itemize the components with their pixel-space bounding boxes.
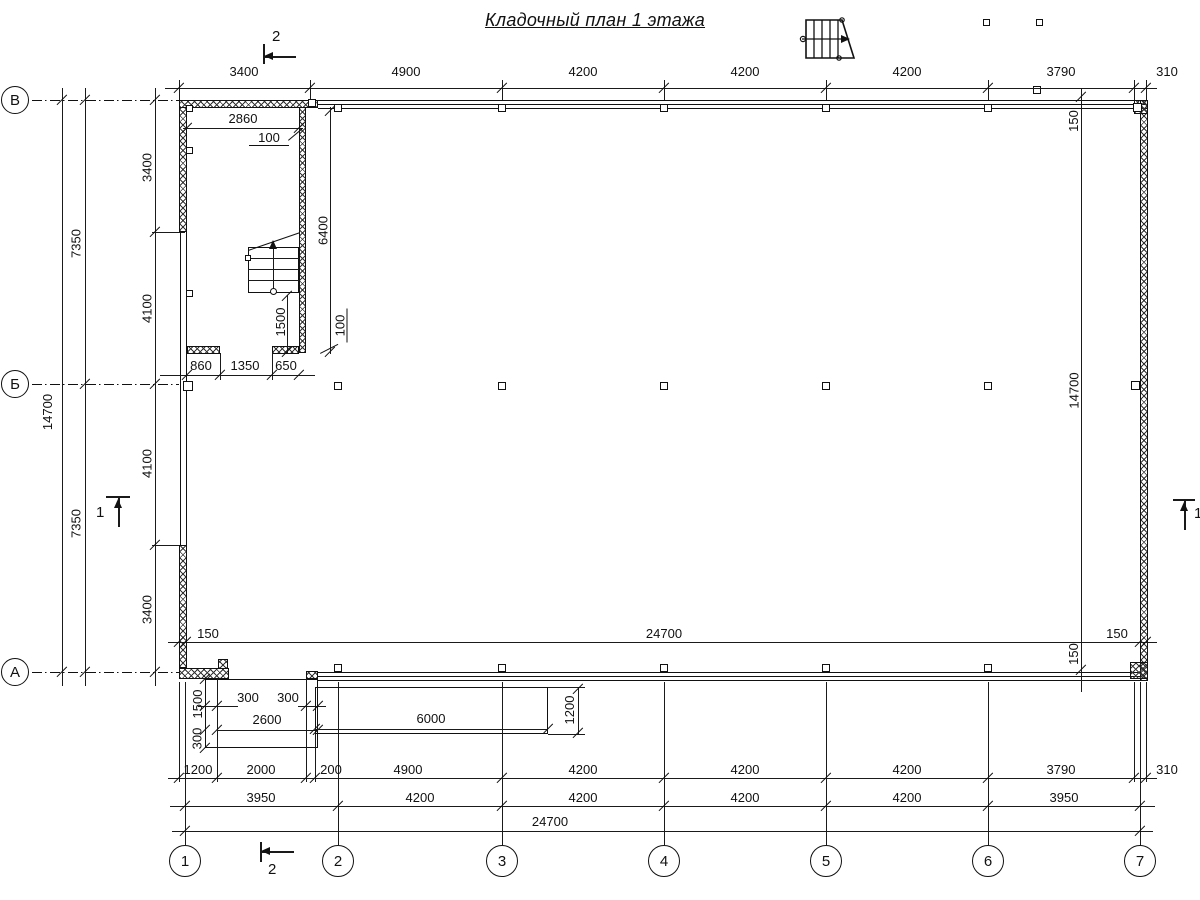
column-marker <box>334 664 342 672</box>
dim-label: 4200 <box>715 762 775 776</box>
masonry-floor-plan: Кладочный план 1 этажа 3400 4900 4200 42… <box>0 0 1200 900</box>
dim-label: 7350 <box>69 500 84 548</box>
dim-label: 4200 <box>877 762 937 776</box>
dim-label: 4200 <box>553 790 613 804</box>
dim-label: 310 <box>1148 64 1186 79</box>
column-marker <box>186 105 193 112</box>
dim-label: 150 <box>1103 627 1131 640</box>
dim-label: 4200 <box>553 64 613 79</box>
dim-label: 150 <box>194 627 222 640</box>
dim-label: 4100 <box>140 287 155 331</box>
dim-label: 650 <box>269 358 303 372</box>
axis-label: 2 <box>334 853 342 870</box>
column-marker <box>186 290 193 297</box>
wall-stair <box>299 107 306 353</box>
axis-bubble-row: В <box>1 86 29 114</box>
column-marker <box>1133 103 1142 112</box>
section-mark-label: 1 <box>1194 506 1200 521</box>
dim-label: 4200 <box>715 64 775 79</box>
wall-bottom-pier <box>306 671 318 679</box>
dim-label: 2000 <box>239 762 283 776</box>
axis-bubble-col: 5 <box>810 845 842 877</box>
column-marker <box>1036 19 1043 26</box>
dim-line <box>62 88 63 686</box>
arrow-up-icon <box>269 240 277 249</box>
dim-label: 1350 <box>221 358 269 372</box>
section-arrow-left-icon <box>264 52 273 60</box>
column-marker <box>660 664 668 672</box>
ext-line <box>548 734 585 735</box>
dim-label: 14700 <box>39 381 55 443</box>
column-marker <box>334 382 342 390</box>
wall-left-top <box>179 107 187 232</box>
dim-label: 4100 <box>140 442 155 486</box>
axis-bubble-col: 6 <box>972 845 1004 877</box>
column-marker <box>308 99 316 107</box>
axis-line <box>826 682 827 845</box>
ext-line <box>1146 682 1147 782</box>
dim-label: 200 <box>313 762 349 776</box>
axis-line <box>32 384 179 385</box>
dim-label: 3790 <box>1031 762 1091 776</box>
dim-label: 4200 <box>715 790 775 804</box>
ext-line <box>1134 682 1135 782</box>
wall-right <box>1140 100 1148 681</box>
axis-label: 4 <box>660 853 668 870</box>
wall-top <box>318 100 1148 109</box>
dim-label: 300 <box>191 724 204 754</box>
axis-line <box>32 672 179 673</box>
column-marker <box>984 104 992 112</box>
stair-arrow-origin <box>270 288 277 295</box>
dim-label: 4200 <box>877 64 937 79</box>
axis-label: В <box>10 92 20 109</box>
dim-label: 3950 <box>231 790 291 804</box>
porch-line <box>217 679 218 748</box>
dim-label: 24700 <box>523 814 577 828</box>
dim-label: 3400 <box>214 64 274 79</box>
dim-label: 2860 <box>215 111 271 126</box>
axis-line <box>32 100 179 101</box>
axis-bubble-col: 3 <box>486 845 518 877</box>
dim-line <box>183 128 303 129</box>
axis-bubble-col: 2 <box>322 845 354 877</box>
dim-label: 860 <box>183 358 219 372</box>
dim-line <box>217 730 318 731</box>
column-marker <box>660 382 668 390</box>
porch-line <box>306 679 307 748</box>
section-mark-label: 1 <box>96 505 104 520</box>
axis-line <box>502 682 503 845</box>
ext-line <box>988 80 989 100</box>
ext-line <box>664 80 665 100</box>
dim-label: 4200 <box>877 790 937 804</box>
wall-bottom <box>318 672 1140 681</box>
section-arrow-left-icon <box>261 847 270 855</box>
axis-line <box>664 682 665 845</box>
stair-symbol-icon <box>798 14 864 69</box>
axis-bubble-col: 4 <box>648 845 680 877</box>
axis-label: Б <box>10 376 20 393</box>
dim-label: 4200 <box>390 790 450 804</box>
axis-bubble-row: А <box>1 658 29 686</box>
ext-line <box>1134 80 1135 100</box>
column-marker <box>660 104 668 112</box>
dim-label: 300 <box>273 690 303 704</box>
dim-line <box>85 88 86 686</box>
dim-label: 1500 <box>273 300 287 344</box>
dim-label: 150 <box>1066 104 1080 138</box>
dim-label: 1500 <box>190 682 204 726</box>
column-marker <box>822 104 830 112</box>
ext-line <box>502 80 503 100</box>
dim-label: 6000 <box>405 711 457 726</box>
dim-line <box>155 88 156 686</box>
dim-line <box>578 687 579 734</box>
wall-corner-br <box>1130 662 1148 679</box>
column-marker <box>334 104 342 112</box>
axis-label: 7 <box>1136 853 1144 870</box>
wall-pier <box>218 659 228 669</box>
axis-label: А <box>10 664 20 681</box>
dim-label: 7350 <box>69 220 84 268</box>
dim-label: 100 <box>333 309 348 343</box>
section-arrow-up-icon <box>1180 502 1188 511</box>
stair-direction-arrow <box>273 243 274 291</box>
dim-label: 1200 <box>562 688 576 732</box>
dim-label: 100 <box>249 130 289 146</box>
dim-line <box>172 831 1153 832</box>
column-marker <box>822 382 830 390</box>
dim-label: 3400 <box>140 588 155 632</box>
axis-line <box>1140 682 1141 845</box>
dim-label: 4200 <box>553 762 613 776</box>
dim-label: 24700 <box>637 627 691 640</box>
column-marker <box>183 381 193 391</box>
column-marker <box>498 104 506 112</box>
wall-left-bottom <box>179 545 187 668</box>
dim-line <box>315 729 548 730</box>
drawing-title: Кладочный план 1 этажа <box>440 10 750 31</box>
dim-label: 4900 <box>376 64 436 79</box>
dim-label: 1200 <box>176 762 220 776</box>
column-marker <box>822 664 830 672</box>
section-arrow-up-icon <box>114 499 122 508</box>
ext-line <box>826 80 827 100</box>
dim-label: 300 <box>233 690 263 704</box>
ext-line <box>179 80 180 100</box>
dim-label: 2600 <box>243 712 291 727</box>
dim-label: 4900 <box>378 762 438 776</box>
column-marker <box>186 147 193 154</box>
dim-line <box>168 642 1157 643</box>
dim-label: 3790 <box>1031 64 1091 79</box>
dim-label: 3950 <box>1034 790 1094 804</box>
column-marker <box>498 382 506 390</box>
column-marker <box>983 19 990 26</box>
axis-label: 3 <box>498 853 506 870</box>
column-marker <box>245 255 251 261</box>
axis-label: 5 <box>822 853 830 870</box>
dim-label: 14700 <box>1067 360 1082 422</box>
ext-line <box>1146 80 1147 100</box>
wall-stub-left <box>187 346 220 354</box>
section-mark-label: 2 <box>268 862 276 877</box>
column-marker <box>1131 381 1140 390</box>
dim-label: 150 <box>1066 637 1080 671</box>
wall-top-stair <box>179 100 318 108</box>
column-marker <box>984 382 992 390</box>
axis-line <box>988 682 989 845</box>
column-marker <box>498 664 506 672</box>
ext-line <box>310 80 311 100</box>
axis-label: 6 <box>984 853 992 870</box>
dim-label: 310 <box>1148 762 1186 776</box>
axis-bubble-row: Б <box>1 370 29 398</box>
column-marker <box>984 664 992 672</box>
dim-label: 6400 <box>316 205 331 257</box>
axis-bubble-col: 7 <box>1124 845 1156 877</box>
axis-bubble-col: 1 <box>169 845 201 877</box>
section-mark-label: 2 <box>272 29 280 44</box>
dim-label: 3400 <box>140 146 155 190</box>
axis-label: 1 <box>181 853 189 870</box>
